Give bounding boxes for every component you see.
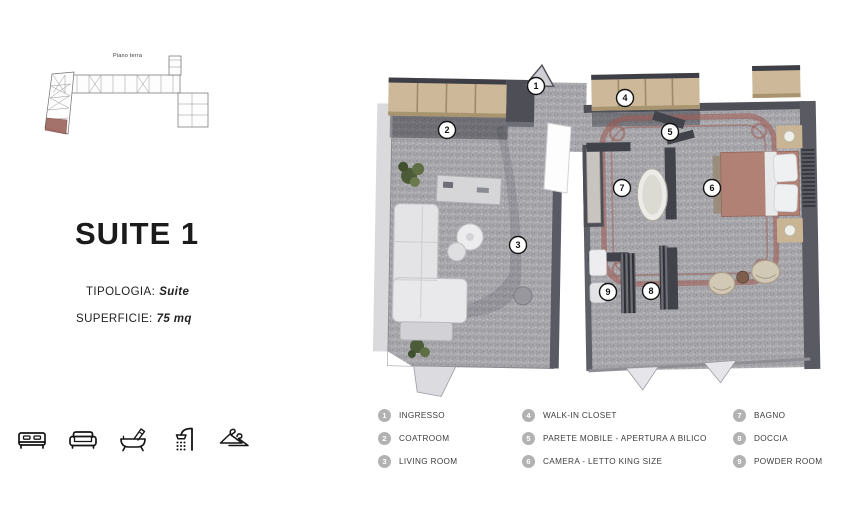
superficie-value: 75 mq bbox=[157, 313, 192, 325]
legend-label: WALK-IN CLOSET bbox=[543, 411, 617, 420]
presentation-page: { "overview": { "title": "Piano terra" }… bbox=[0, 0, 868, 530]
open-door-leaf bbox=[544, 123, 571, 193]
legend-badge: 6 bbox=[522, 455, 535, 468]
legend-item: 7BAGNO bbox=[733, 409, 822, 422]
legend-badge: 1 bbox=[378, 409, 391, 422]
marker-7: 7 bbox=[619, 183, 624, 193]
bathtub bbox=[637, 169, 668, 222]
legend-label: CAMERA - LETTO KING SIZE bbox=[543, 457, 662, 466]
legend-badge: 3 bbox=[378, 455, 391, 468]
floor-plan-render: 1 2 3 4 5 6 7 8 9 bbox=[372, 55, 824, 400]
legend-badge: 8 bbox=[733, 432, 746, 445]
bedroom-block bbox=[581, 65, 821, 391]
legend-badge: 2 bbox=[378, 432, 391, 445]
legend-item: 8DOCCIA bbox=[733, 432, 822, 445]
superficie-row: SUPERFICIE:75 mq bbox=[76, 313, 192, 325]
pouf bbox=[514, 287, 532, 305]
coatroom-cabinets bbox=[388, 78, 507, 118]
marker-2: 2 bbox=[444, 125, 449, 135]
legend-badge: 9 bbox=[733, 455, 746, 468]
legend-label: POWDER ROOM bbox=[754, 457, 822, 466]
bathtub-icon bbox=[115, 423, 151, 455]
tipologia-label: TIPOLOGIA: bbox=[86, 286, 155, 298]
marker-1: 1 bbox=[533, 81, 538, 91]
legend-item: 1INGRESSO bbox=[378, 409, 457, 422]
page-title: SUITE 1 bbox=[75, 216, 199, 252]
keyplan-outline bbox=[45, 56, 208, 134]
legend-item: 3LIVING ROOM bbox=[378, 455, 457, 468]
legend-label: PARETE MOBILE - APERTURA A BILICO bbox=[543, 434, 707, 443]
legend-label: BAGNO bbox=[754, 411, 785, 420]
legend-item: 2COATROOM bbox=[378, 432, 457, 445]
tipologia-value: Suite bbox=[159, 286, 189, 298]
superficie-label: SUPERFICIE: bbox=[76, 313, 153, 325]
living-room-block bbox=[372, 62, 587, 399]
legend-column-3: 7BAGNO 8DOCCIA 9POWDER ROOM bbox=[733, 409, 822, 468]
legend-column-1: 1INGRESSO 2COATROOM 3LIVING ROOM bbox=[378, 409, 457, 468]
marker-3: 3 bbox=[515, 240, 520, 250]
legend-column-2: 4WALK-IN CLOSET 5PARETE MOBILE - APERTUR… bbox=[522, 409, 707, 468]
bed-icon bbox=[14, 423, 50, 455]
legend-label: INGRESSO bbox=[399, 411, 445, 420]
legend-item: 6CAMERA - LETTO KING SIZE bbox=[522, 455, 707, 468]
sofa-icon bbox=[65, 423, 101, 455]
legend-label: COATROOM bbox=[399, 434, 449, 443]
marker-5: 5 bbox=[667, 127, 672, 137]
wall-radiator bbox=[802, 148, 816, 208]
shower-icon bbox=[166, 423, 202, 455]
hanger-icon bbox=[216, 423, 252, 455]
legend-label: DOCCIA bbox=[754, 434, 788, 443]
legend-item: 4WALK-IN CLOSET bbox=[522, 409, 707, 422]
legend-badge: 7 bbox=[733, 409, 746, 422]
king-bed bbox=[713, 151, 800, 216]
marker-9: 9 bbox=[605, 287, 610, 297]
marker-4: 4 bbox=[622, 93, 627, 103]
marker-6: 6 bbox=[709, 183, 714, 193]
legend-item: 9POWDER ROOM bbox=[733, 455, 822, 468]
legend-badge: 4 bbox=[522, 409, 535, 422]
keyplan-thumbnail bbox=[40, 48, 232, 144]
legend-badge: 5 bbox=[522, 432, 535, 445]
legend-label: LIVING ROOM bbox=[399, 457, 457, 466]
amenities-row bbox=[14, 423, 252, 455]
marker-8: 8 bbox=[648, 286, 653, 296]
tipologia-row: TIPOLOGIA:Suite bbox=[86, 286, 189, 298]
vanity bbox=[582, 145, 603, 227]
keyplan-suite-highlight bbox=[45, 118, 67, 134]
console-table bbox=[436, 175, 501, 204]
corner-cabinet bbox=[752, 65, 801, 98]
legend-item: 5PARETE MOBILE - APERTURA A BILICO bbox=[522, 432, 707, 445]
